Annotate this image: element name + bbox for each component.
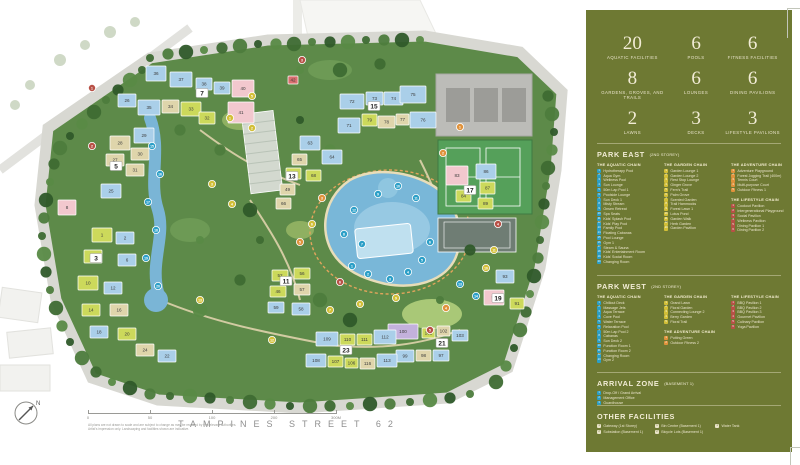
building-number: 99 <box>402 354 408 359</box>
building-number: 107 <box>332 359 340 364</box>
other-facilities-name: OTHER FACILITIES <box>597 412 675 421</box>
building-number: 56 <box>299 271 305 276</box>
frame-artifact <box>790 447 800 448</box>
building-block: 59 <box>268 302 284 313</box>
legend-label-text: Chillout Deck <box>603 301 624 305</box>
tree <box>464 244 475 255</box>
legend-swatch: 4 <box>664 315 668 319</box>
block-number: 23 <box>342 347 350 354</box>
facility-marker-number: 4 <box>497 222 499 226</box>
legend-swatch: 20 <box>597 260 601 264</box>
building-number: 24 <box>142 348 148 353</box>
legend-label-text: Changing Room <box>603 354 629 358</box>
scale-tick <box>212 410 213 414</box>
facility-marker: 20 <box>154 282 161 289</box>
legend-label-text: Trail Hammocks <box>670 202 696 206</box>
building-block: 2 <box>116 232 134 244</box>
building-number: 103 <box>456 333 464 338</box>
facility-marker: 7 <box>358 240 365 247</box>
facility-marker-number: 11 <box>492 248 496 252</box>
legend-label-text: Water Terrace <box>603 320 625 324</box>
building-block: 58 <box>292 303 310 315</box>
tree <box>123 73 137 87</box>
facility-marker-number: 13 <box>458 282 462 286</box>
scale-tick-label: 300M <box>331 415 341 420</box>
facility-marker-number: 1 <box>91 86 93 90</box>
legend-swatch: 5 <box>597 188 601 192</box>
legend-label-text: Family Pool <box>603 226 622 230</box>
building-number: 113 <box>383 358 391 363</box>
tree <box>346 402 354 410</box>
building-number: 26 <box>124 98 130 103</box>
legend-label-text: Putting Green <box>670 336 692 340</box>
building-block: 35 <box>138 100 160 115</box>
facility-marker: 2 <box>364 270 371 277</box>
legend-label-text: Social Pavilion <box>737 214 760 218</box>
legend-label-text: Bin Centre (Basement 1) <box>661 424 701 428</box>
building-number: 73 <box>372 96 378 101</box>
facility-marker: 1 <box>226 114 233 121</box>
block-number: 7 <box>200 90 204 97</box>
building-block: 8 <box>58 200 76 215</box>
building-block: 75 <box>400 86 426 103</box>
building-number: 111 <box>361 337 368 342</box>
scale-tick-label: 100 <box>209 415 216 420</box>
building-block: 97 <box>433 350 449 361</box>
facility-marker: 13 <box>456 280 463 287</box>
legend-swatch: 6 <box>731 325 735 329</box>
site-plan-map: 2636373839404135343332422829302731258124… <box>0 0 578 465</box>
tree <box>102 96 110 104</box>
legend-label-text: Substation (Basement 1) <box>603 430 643 434</box>
block-number: 11 <box>283 278 290 285</box>
facility-chain: THE AQUATIC CHAIN1Chillout Deck2Massage … <box>597 294 657 363</box>
tree <box>254 40 262 48</box>
facility-marker: 6 <box>308 220 315 227</box>
arrival-zone-section: ARRIVAL ZONE (BASEMENT 1) 1Drop-Off / Gr… <box>597 375 781 403</box>
legend-label-text: Changing Room <box>603 260 629 264</box>
legend-item: 5Outdoor Fitness 1 <box>731 188 791 193</box>
facility-marker-number: 10 <box>484 266 488 270</box>
stat-value: 2 <box>597 109 668 128</box>
building-number: 108 <box>312 358 320 363</box>
stat-label: DECKS <box>668 130 725 136</box>
building-block: 106 <box>345 358 358 368</box>
tree <box>395 33 409 47</box>
legend-label-text: Tennis Court <box>737 178 757 182</box>
legend-swatch: 5 <box>731 320 735 324</box>
building-block: 87 <box>480 182 495 194</box>
legend-label-text: Bicycle Lots (Basement 1) <box>661 430 703 434</box>
legend-label-text: Sun Deck 1 <box>603 198 622 202</box>
legend-swatch: 1 <box>597 424 601 428</box>
legend-item: 13Gym 2 <box>597 358 657 363</box>
tree <box>200 46 208 54</box>
chain-column: THE AQUATIC CHAIN1Chillout Deck2Massage … <box>597 294 657 363</box>
legend-label-text: Forest Jogging Trail (400m) <box>737 174 781 178</box>
facility-marker: 3 <box>386 275 393 282</box>
building-block: 108 <box>306 354 326 367</box>
legend-swatch: 15 <box>597 236 601 240</box>
building-block: 66 <box>276 198 291 209</box>
legend-label-text: Wellness Pavilion <box>737 219 765 223</box>
chain-column: THE AQUATIC CHAIN1Hydrotherapy Pool2Aqua… <box>597 162 657 264</box>
facility-marker: 9 <box>374 190 381 197</box>
map-disclaimer: All plans are not drawn to scale and are… <box>88 423 308 432</box>
building-number: 22 <box>164 354 170 359</box>
building-block: 71 <box>338 118 360 133</box>
legend-swatch: 4 <box>597 183 601 187</box>
tree <box>296 116 304 124</box>
block-label: 13 <box>286 172 298 181</box>
scale-tick-label: 0 <box>87 415 89 420</box>
facility-marker: 17 <box>144 198 151 205</box>
building-block: 56 <box>294 268 310 279</box>
facility-marker: 12 <box>350 206 357 213</box>
legend-swatch: 1 <box>664 336 668 340</box>
legend-swatch: 5 <box>597 320 601 324</box>
tree <box>216 42 227 53</box>
legend-swatch: 5 <box>731 188 735 192</box>
legend-swatch: 10 <box>597 212 601 216</box>
legend-label-text: Adventure Playground <box>737 169 773 173</box>
stat-label: LAWNS <box>597 130 668 136</box>
legend-label-text: BBQ Pavilion 1 <box>737 301 761 305</box>
stat-item: 6FITNESS FACILITIES <box>724 34 781 61</box>
stat-label: LOUNGES <box>668 90 725 96</box>
legend-label-text: Palm Grove <box>670 193 689 197</box>
legend-swatch: 5 <box>664 188 668 192</box>
building-number: 37 <box>178 77 184 82</box>
legend-label-text: Wellness Pool <box>603 178 626 182</box>
svg-text:N: N <box>36 401 40 407</box>
building-number: 2 <box>124 236 127 241</box>
legend-item: 1Bin Centre (Basement 1) <box>655 424 703 429</box>
building-block: 98 <box>416 350 431 361</box>
facility-marker: 11 <box>490 246 497 253</box>
legend-label-text: Culinary Pavilion <box>737 320 764 324</box>
tree <box>66 338 74 346</box>
stat-value: 8 <box>597 69 668 88</box>
tree <box>546 144 557 155</box>
building-number: 31 <box>132 168 138 173</box>
park-west-name: PARK WEST <box>597 282 647 291</box>
facility-marker-number: 5 <box>251 94 253 98</box>
building-block: 1 <box>92 228 112 242</box>
legend-label-text: Connecting Lounge 2 <box>670 310 704 314</box>
park-east-name: PARK EAST <box>597 150 645 159</box>
building-number: 42 <box>290 78 296 83</box>
tree <box>193 303 207 317</box>
legend-swatch: 4 <box>731 315 735 319</box>
tree <box>39 193 53 207</box>
stat-value: 20 <box>597 34 668 53</box>
block-number: 13 <box>288 173 296 180</box>
facility-marker: 9 <box>392 294 399 301</box>
building-block: 29 <box>134 128 154 143</box>
legend-label-text: Multi-purpose Court <box>737 183 769 187</box>
building-number: 1 <box>101 233 104 238</box>
scale-tick <box>274 410 275 414</box>
tree <box>384 398 395 409</box>
legend-item: 13Garden Pavilion <box>664 226 724 231</box>
tree <box>378 34 389 45</box>
tree <box>308 38 316 46</box>
stat-label: LIFESTYLE PAVILIONS <box>724 130 781 136</box>
facility-marker-number: 4 <box>407 270 409 274</box>
legend-label-text: Fern's Trail <box>670 188 688 192</box>
legend-swatch: 2 <box>664 341 668 345</box>
tree <box>108 378 116 386</box>
building-block: 89 <box>478 198 493 209</box>
arrival-zone-name: ARRIVAL ZONE <box>597 379 659 388</box>
tree <box>196 236 204 244</box>
tree <box>406 398 414 406</box>
tree <box>341 35 355 49</box>
park-west-title: PARK WEST (2ND STOREY) <box>597 282 781 291</box>
legend-label-text: Steam & Sauna <box>603 246 628 250</box>
legend-swatch: 1 <box>731 204 735 208</box>
legend-label-text: Ginger Grove <box>670 183 692 187</box>
building-number: 112 <box>381 335 389 340</box>
legend-swatch: 3 <box>597 310 601 314</box>
building-block: 6 <box>118 254 136 266</box>
tree <box>123 381 137 395</box>
building-number: 74 <box>391 96 397 101</box>
other-facilities-column: 1Water Tank <box>715 424 739 435</box>
tree <box>436 296 444 304</box>
building-block: 110 <box>340 334 355 345</box>
building-block: 109 <box>316 332 338 346</box>
chain-name: THE LIFESTYLE CHAIN <box>731 294 791 299</box>
facility-marker: 5 <box>248 92 255 99</box>
legend-swatch: 9 <box>664 207 668 211</box>
facility-chain: THE GARDEN CHAIN1Grand Lawn2Floral Garde… <box>664 294 724 324</box>
tree <box>513 323 527 337</box>
facility-chain: THE ADVENTURE CHAIN1Adventure Playground… <box>731 162 791 192</box>
facility-marker-number: 11 <box>414 196 418 200</box>
tree <box>90 366 101 377</box>
building-number: 58 <box>298 307 304 312</box>
facility-marker: 2 <box>439 149 446 156</box>
facility-marker: 3 <box>208 180 215 187</box>
facility-chain: THE AQUATIC CHAIN1Hydrotherapy Pool2Aqua… <box>597 162 657 264</box>
block-number: 17 <box>466 187 474 194</box>
facility-marker: 14 <box>472 292 479 299</box>
building-number: 102 <box>440 329 448 334</box>
tree <box>545 107 559 121</box>
facility-marker: 15 <box>148 142 155 149</box>
block-label: 21 <box>436 339 448 348</box>
tree <box>46 286 54 294</box>
legend-label-text: Herb Garden <box>670 222 691 226</box>
legend-swatch: 5 <box>664 320 668 324</box>
building-block: 39 <box>214 82 230 94</box>
building-number: 72 <box>349 99 355 104</box>
facility-marker: 4 <box>404 268 411 275</box>
scale-tick-label: 50 <box>148 415 152 420</box>
facility-marker: 19 <box>142 254 149 261</box>
tree <box>500 360 511 371</box>
facility-marker: 1 <box>348 262 355 269</box>
building-block: 33 <box>181 102 201 116</box>
chain-column: THE ADVENTURE CHAIN1Adventure Playground… <box>731 162 791 264</box>
legend-label-text: Kids' Play Pool <box>603 222 627 226</box>
stat-item: 3LIFESTYLE PAVILIONS <box>724 109 781 136</box>
facility-marker-number: 2 <box>442 151 444 155</box>
facility-marker-number: 7 <box>361 242 363 246</box>
facility-marker-number: 5 <box>429 328 431 332</box>
building-number: 34 <box>168 104 174 109</box>
building-number: 32 <box>204 116 210 121</box>
building-block: 93 <box>496 270 514 283</box>
legend-label-text: Garden Lounge 2 <box>670 174 698 178</box>
tree <box>226 396 234 404</box>
block-label: 11 <box>280 277 292 286</box>
tree <box>256 236 264 244</box>
legend-label-text: Gym 1 <box>603 241 614 245</box>
tree <box>233 39 247 53</box>
building-block: 32 <box>199 112 215 124</box>
other-facilities-column: 1Bin Centre (Basement 1)2Bicycle Lots (B… <box>655 424 703 435</box>
legend-item: 6Dining Pavilion 2 <box>731 228 791 233</box>
building-number: 87 <box>485 186 491 191</box>
divider <box>597 372 781 373</box>
tree <box>144 388 155 399</box>
building-number: 64 <box>329 155 335 160</box>
building-number: 75 <box>410 92 416 97</box>
north-compass: N <box>12 396 46 428</box>
facility-marker: 2 <box>88 142 95 149</box>
facility-marker-number: 6 <box>311 222 313 226</box>
building-block: 18 <box>90 326 108 338</box>
legend-swatch: 8 <box>597 334 601 338</box>
legend-swatch: 9 <box>597 339 601 343</box>
facilities-legend-panel: 20AQUATIC FACILITIES6POOLS6FITNESS FACIL… <box>586 10 792 452</box>
tree <box>179 45 193 59</box>
building-number: 28 <box>117 141 123 146</box>
tree <box>48 158 59 169</box>
building-number: 57 <box>299 287 305 292</box>
stat-item: 20AQUATIC FACILITIES <box>597 34 668 61</box>
legend-label-text: Misty Stream <box>603 202 624 206</box>
legend-label-text: Floral Garden <box>670 306 692 310</box>
legend-label-text: BBQ Pavilion 2 <box>737 306 761 310</box>
legend-label-text: Function Room 1 <box>603 344 630 348</box>
legend-label-text: Aqua Gym <box>603 174 620 178</box>
building-block: 26 <box>118 94 136 107</box>
chain-name: THE AQUATIC CHAIN <box>597 162 657 167</box>
legend-label-text: Gourmet Pavilion <box>737 315 765 319</box>
legend-label-text: Pool Lounge <box>603 236 623 240</box>
legend-label-text: Poolside Lounge <box>603 193 630 197</box>
chain-column: THE GARDEN CHAIN1Garden Lounge 12Garden … <box>664 162 724 264</box>
facility-marker: 18 <box>152 226 159 233</box>
block-number: 21 <box>438 340 446 347</box>
park-west-section: PARK WEST (2ND STOREY) THE AQUATIC CHAIN… <box>597 278 781 370</box>
legend-label-text: Garden Pavilion <box>670 226 696 230</box>
facility-marker-number: 3 <box>301 58 303 62</box>
building-block: 64 <box>322 150 342 164</box>
tree <box>541 161 555 175</box>
disclaimer-line-2: Artist's impression only. Landscaping an… <box>88 427 308 431</box>
building-block: 10 <box>78 276 98 290</box>
multipurpose-court <box>438 218 516 252</box>
park-east-section: PARK EAST (2ND STOREY) THE AQUATIC CHAIN… <box>597 146 781 273</box>
tree <box>532 252 543 263</box>
facility-marker-number: 9 <box>377 192 379 196</box>
divider <box>597 405 781 406</box>
facility-marker: 5 <box>426 326 433 333</box>
tree <box>526 290 534 298</box>
building-block: 42 <box>288 76 298 84</box>
facility-marker: 1 <box>88 84 95 91</box>
building-number: 98 <box>421 353 427 358</box>
legend-item: 5Floral Trail <box>664 320 724 325</box>
facility-marker: 8 <box>340 230 347 237</box>
stat-label: AQUATIC FACILITIES <box>597 55 668 61</box>
block-number: 5 <box>114 163 118 170</box>
building-number: 40 <box>240 86 246 91</box>
stat-label: FITNESS FACILITIES <box>724 55 781 61</box>
facility-marker-number: 1 <box>459 125 461 129</box>
frame-artifact <box>790 447 791 465</box>
building-number: 12 <box>110 286 116 291</box>
facility-marker-number: 8 <box>359 302 361 306</box>
block-label: 15 <box>368 102 380 111</box>
building-block: 113 <box>377 354 397 367</box>
divider <box>597 143 781 144</box>
building-block: 49 <box>280 184 295 195</box>
scale-tick <box>336 410 337 414</box>
facility-marker-number: 14 <box>474 294 478 298</box>
tree <box>87 105 101 119</box>
building-number: 35 <box>146 105 152 110</box>
building-block: 20 <box>118 328 136 340</box>
facility-marker: 3 <box>298 56 305 63</box>
building-number: 66 <box>281 201 287 206</box>
legend-label-text: 50m Lap Pool 2 <box>603 330 628 334</box>
building-block: 16 <box>110 304 128 316</box>
legend-swatch: 3 <box>597 178 601 182</box>
legend-label-text: Cove Pool <box>603 315 620 319</box>
building-number: 78 <box>384 120 390 125</box>
scale-tick-label: 200 <box>271 415 278 420</box>
legend-swatch: 2 <box>597 430 601 434</box>
arrival-zone-storey: (BASEMENT 1) <box>664 381 694 386</box>
stat-item: 8GARDENS, GROVES, AND TRAILS <box>597 69 668 101</box>
legend-label-text: Scented Garden <box>670 198 696 202</box>
building-number: 29 <box>141 133 147 138</box>
building-block: 111 <box>357 334 372 345</box>
block-label: 7 <box>196 89 208 98</box>
tree <box>542 90 553 101</box>
tree <box>423 393 437 407</box>
building-number: 8 <box>66 205 69 210</box>
legend-label-text: Massage Jets <box>603 306 625 310</box>
building-number: 25 <box>108 189 114 194</box>
building-number: 65 <box>297 157 303 162</box>
building-number: 39 <box>219 86 225 91</box>
legend-label-text: Outdoor Fitness 1 <box>737 188 766 192</box>
divider <box>597 275 781 276</box>
facility-marker: 3 <box>318 194 325 201</box>
legend-swatch: 10 <box>664 212 668 216</box>
tree <box>374 58 385 69</box>
building-block: 68 <box>306 170 321 181</box>
stat-value: 6 <box>724 69 781 88</box>
chain-name: THE GARDEN CHAIN <box>664 162 724 167</box>
